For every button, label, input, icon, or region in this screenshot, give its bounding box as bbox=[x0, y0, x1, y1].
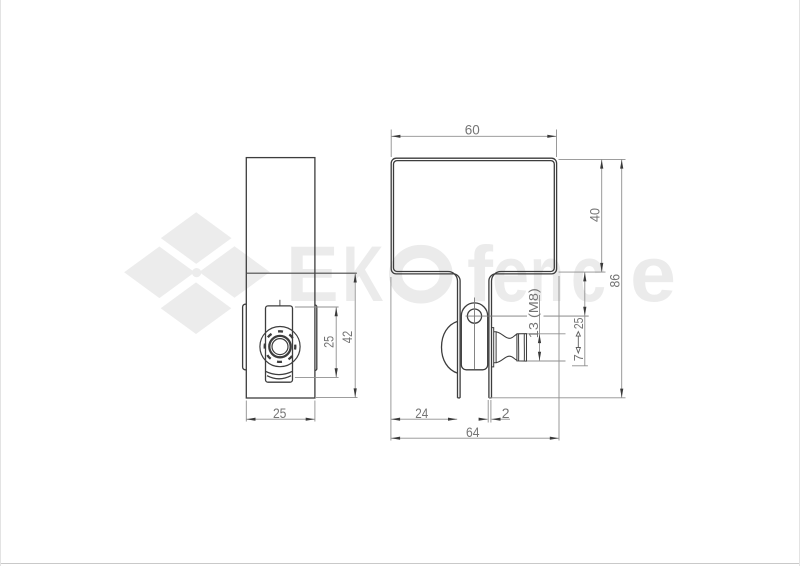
svg-text:2: 2 bbox=[502, 405, 510, 421]
svg-text:e: e bbox=[630, 229, 676, 318]
svg-text:86: 86 bbox=[607, 274, 623, 288]
svg-text:64: 64 bbox=[466, 424, 480, 440]
svg-text:25: 25 bbox=[273, 405, 287, 421]
svg-text:60: 60 bbox=[465, 122, 480, 138]
svg-text:13 (M8): 13 (M8) bbox=[527, 288, 541, 338]
svg-text:25: 25 bbox=[572, 318, 586, 330]
svg-text:c: c bbox=[571, 229, 606, 318]
svg-text:40: 40 bbox=[587, 208, 603, 222]
svg-text:24: 24 bbox=[415, 405, 428, 421]
svg-text:42: 42 bbox=[339, 331, 355, 344]
svg-text:25: 25 bbox=[320, 336, 336, 348]
svg-text:7: 7 bbox=[572, 354, 586, 361]
